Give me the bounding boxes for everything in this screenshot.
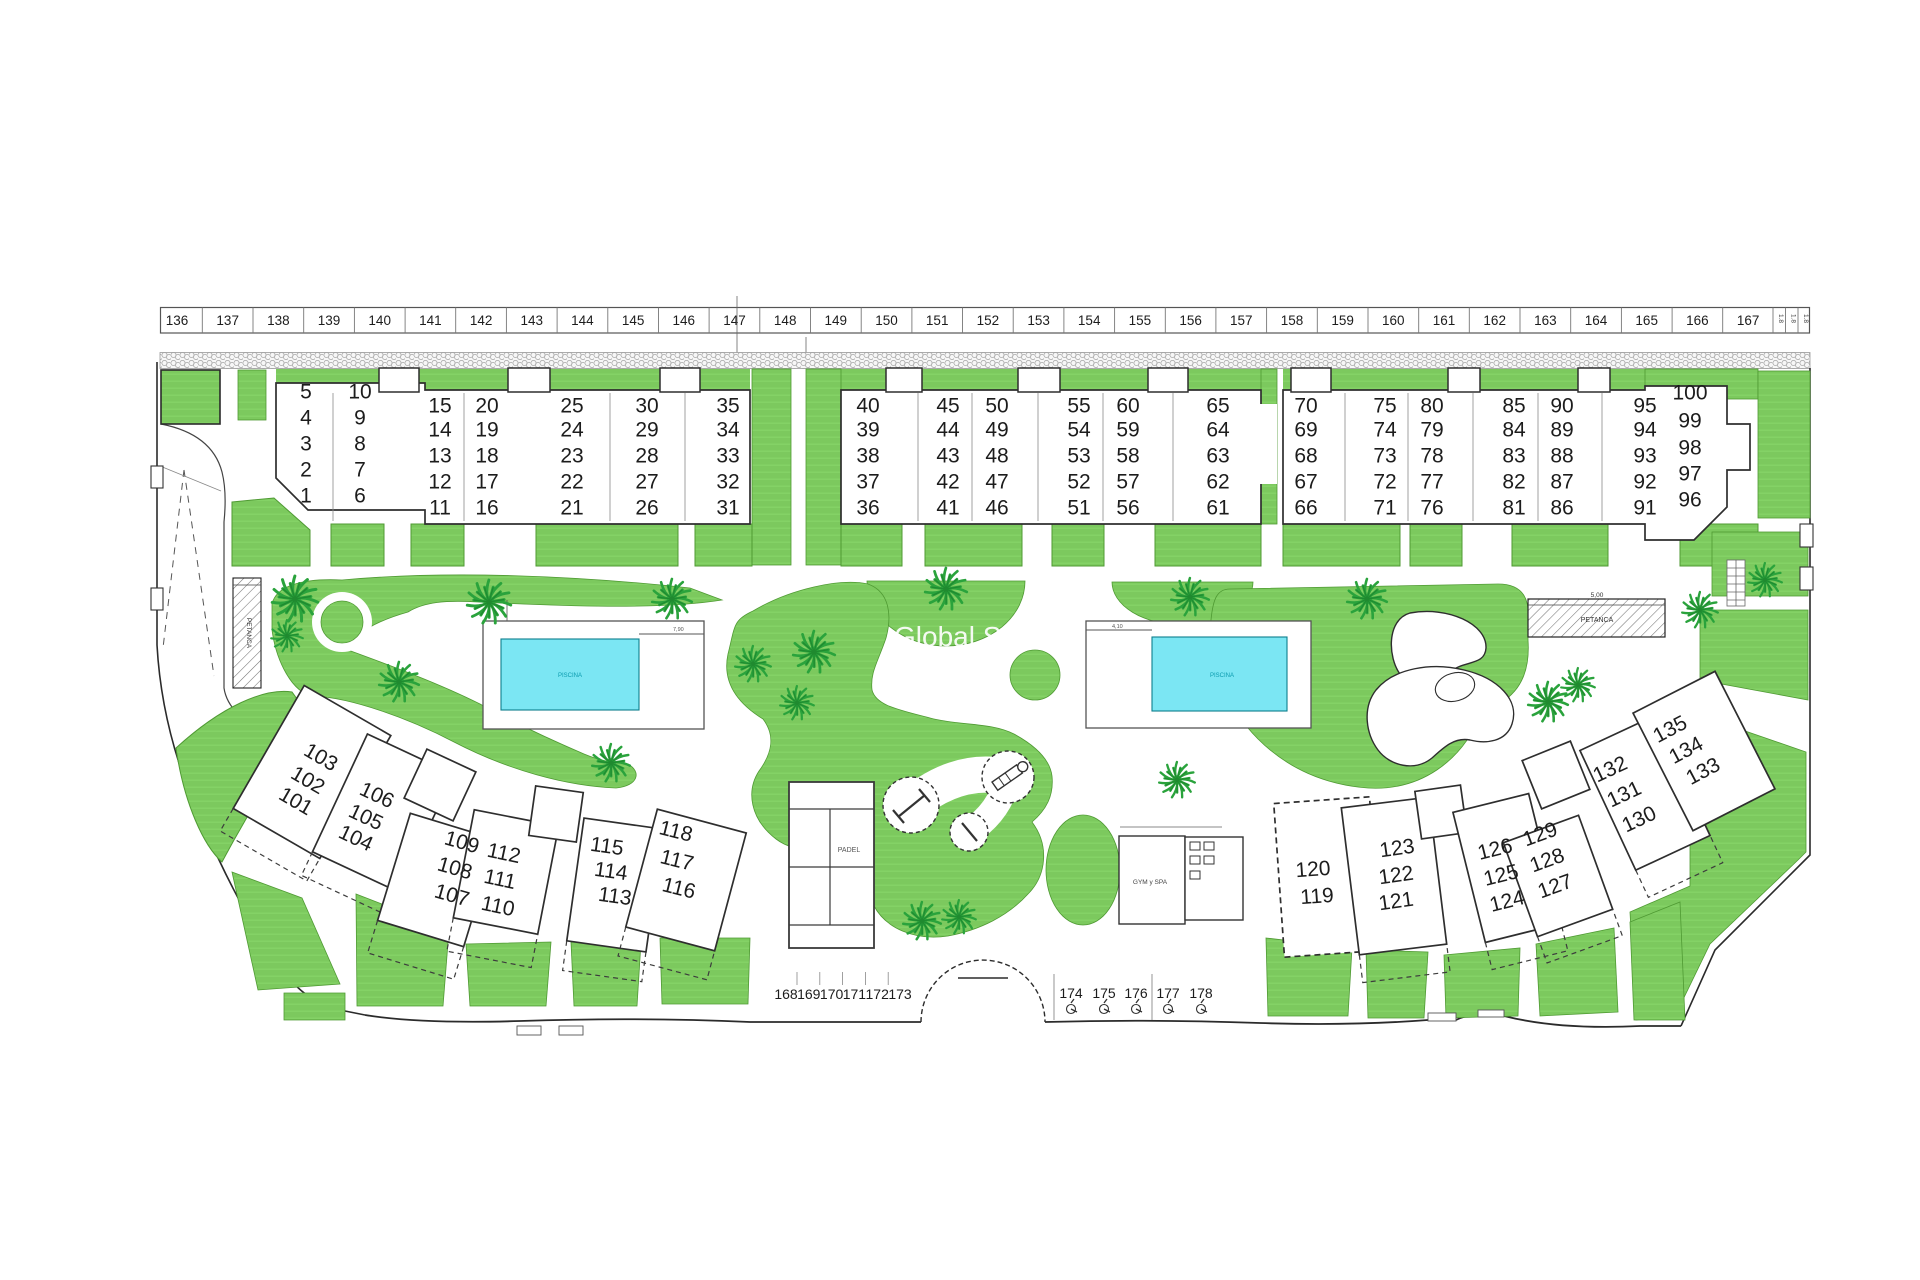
svg-text:16: 16 (475, 497, 498, 520)
svg-text:5: 5 (300, 381, 312, 404)
svg-text:81: 81 (1502, 497, 1525, 520)
svg-text:163: 163 (1534, 313, 1557, 328)
svg-text:160: 160 (1382, 313, 1405, 328)
svg-text:56: 56 (1116, 497, 1139, 520)
svg-text:29: 29 (635, 419, 658, 442)
svg-text:11: 11 (429, 497, 451, 520)
svg-text:54: 54 (1067, 419, 1091, 442)
svg-text:114: 114 (593, 858, 630, 885)
svg-text:40: 40 (856, 395, 879, 418)
svg-text:123: 123 (1378, 835, 1416, 863)
svg-text:19: 19 (475, 419, 498, 442)
svg-text:43: 43 (936, 445, 959, 468)
svg-text:162: 162 (1483, 313, 1506, 328)
svg-text:PETANCA: PETANCA (245, 618, 252, 649)
svg-text:171: 171 (843, 986, 867, 1002)
svg-text:68: 68 (1294, 445, 1317, 468)
svg-text:70: 70 (1294, 395, 1317, 418)
svg-text:173: 173 (888, 986, 912, 1002)
svg-text:37: 37 (856, 471, 879, 494)
svg-text:172: 172 (866, 986, 890, 1002)
svg-text:178: 178 (1189, 985, 1213, 1001)
svg-text:149: 149 (825, 313, 848, 328)
svg-text:175: 175 (1092, 985, 1116, 1001)
svg-text:120: 120 (1295, 857, 1332, 882)
svg-text:148: 148 (774, 313, 797, 328)
svg-text:150: 150 (875, 313, 898, 328)
svg-text:1.8: 1.8 (1777, 314, 1784, 323)
svg-text:144: 144 (571, 313, 594, 328)
svg-text:51: 51 (1067, 497, 1090, 520)
svg-text:28: 28 (635, 445, 658, 468)
svg-text:59: 59 (1116, 419, 1139, 442)
svg-text:61: 61 (1206, 497, 1229, 520)
svg-text:147: 147 (723, 313, 746, 328)
svg-text:27: 27 (635, 471, 658, 494)
svg-text:58: 58 (1116, 445, 1139, 468)
svg-text:74: 74 (1373, 419, 1397, 442)
svg-text:18: 18 (475, 445, 498, 468)
svg-text:15: 15 (428, 395, 451, 418)
svg-text:91: 91 (1633, 497, 1656, 520)
svg-text:159: 159 (1331, 313, 1354, 328)
svg-text:90: 90 (1550, 395, 1573, 418)
svg-text:143: 143 (521, 313, 544, 328)
svg-text:145: 145 (622, 313, 645, 328)
svg-text:82: 82 (1502, 471, 1525, 494)
svg-text:1.8: 1.8 (1802, 314, 1809, 323)
svg-text:161: 161 (1433, 313, 1456, 328)
svg-text:86: 86 (1550, 497, 1573, 520)
svg-text:176: 176 (1124, 985, 1148, 1001)
svg-text:168: 168 (774, 986, 798, 1002)
svg-text:98: 98 (1678, 437, 1701, 460)
svg-text:174: 174 (1059, 985, 1083, 1001)
svg-text:42: 42 (936, 471, 959, 494)
svg-text:155: 155 (1129, 313, 1152, 328)
svg-text:8: 8 (354, 433, 366, 456)
svg-text:153: 153 (1027, 313, 1050, 328)
svg-text:119: 119 (1300, 884, 1335, 909)
svg-text:146: 146 (673, 313, 696, 328)
svg-text:166: 166 (1686, 313, 1709, 328)
svg-text:92: 92 (1633, 471, 1656, 494)
svg-text:75: 75 (1373, 395, 1396, 418)
svg-text:66: 66 (1294, 497, 1317, 520)
svg-text:85: 85 (1502, 395, 1525, 418)
svg-text:62: 62 (1206, 471, 1229, 494)
svg-text:57: 57 (1116, 471, 1139, 494)
svg-text:46: 46 (985, 497, 1008, 520)
svg-text:3: 3 (300, 433, 312, 456)
svg-text:53: 53 (1067, 445, 1090, 468)
svg-text:32: 32 (716, 471, 739, 494)
svg-text:65: 65 (1206, 395, 1229, 418)
svg-text:177: 177 (1156, 985, 1180, 1001)
svg-text:63: 63 (1206, 445, 1229, 468)
svg-text:78: 78 (1420, 445, 1443, 468)
svg-text:94: 94 (1633, 419, 1657, 442)
svg-text:39: 39 (856, 419, 879, 442)
svg-text:140: 140 (368, 313, 391, 328)
svg-text:164: 164 (1585, 313, 1608, 328)
svg-text:Global Sp: Global Sp (894, 621, 1017, 652)
svg-text:6: 6 (354, 485, 366, 508)
svg-text:PETANCA: PETANCA (1581, 617, 1614, 624)
svg-text:60: 60 (1116, 395, 1139, 418)
svg-text:38: 38 (856, 445, 879, 468)
svg-text:137: 137 (216, 313, 239, 328)
svg-text:21: 21 (560, 497, 583, 520)
svg-text:24: 24 (560, 419, 584, 442)
svg-text:20: 20 (475, 395, 498, 418)
svg-text:45: 45 (936, 395, 959, 418)
svg-text:151: 151 (926, 313, 949, 328)
svg-text:7,90: 7,90 (673, 627, 684, 633)
svg-text:36: 36 (856, 497, 879, 520)
svg-text:167: 167 (1737, 313, 1760, 328)
svg-text:93: 93 (1633, 445, 1656, 468)
svg-text:77: 77 (1420, 471, 1443, 494)
svg-text:141: 141 (419, 313, 442, 328)
svg-text:72: 72 (1373, 471, 1396, 494)
svg-text:1.8: 1.8 (1790, 314, 1797, 323)
svg-text:PISCINA: PISCINA (1210, 673, 1234, 679)
svg-text:48: 48 (985, 445, 1008, 468)
svg-text:30: 30 (635, 395, 658, 418)
svg-text:17: 17 (475, 471, 498, 494)
svg-text:4,10: 4,10 (1112, 624, 1123, 630)
svg-text:69: 69 (1294, 419, 1317, 442)
svg-text:80: 80 (1420, 395, 1443, 418)
svg-text:152: 152 (977, 313, 1000, 328)
svg-text:138: 138 (267, 313, 290, 328)
svg-text:156: 156 (1179, 313, 1202, 328)
svg-text:50: 50 (985, 395, 1008, 418)
svg-text:121: 121 (1377, 888, 1415, 916)
svg-text:89: 89 (1550, 419, 1573, 442)
svg-text:64: 64 (1206, 419, 1230, 442)
svg-text:71: 71 (1373, 497, 1396, 520)
svg-text:44: 44 (936, 419, 960, 442)
svg-text:33: 33 (716, 445, 739, 468)
svg-text:GYM y SPA: GYM y SPA (1133, 879, 1168, 886)
svg-text:113: 113 (597, 883, 633, 910)
svg-text:79: 79 (1420, 419, 1443, 442)
svg-text:22: 22 (560, 471, 583, 494)
svg-text:170: 170 (820, 986, 844, 1002)
svg-text:9: 9 (354, 407, 366, 430)
svg-text:84: 84 (1502, 419, 1526, 442)
svg-text:87: 87 (1550, 471, 1573, 494)
svg-text:35: 35 (716, 395, 739, 418)
svg-text:96: 96 (1678, 489, 1701, 512)
svg-text:26: 26 (635, 497, 658, 520)
svg-text:2: 2 (300, 459, 312, 482)
svg-text:142: 142 (470, 313, 493, 328)
svg-text:12: 12 (428, 471, 451, 494)
svg-text:41: 41 (936, 497, 959, 520)
svg-text:97: 97 (1678, 463, 1701, 486)
svg-text:99: 99 (1678, 410, 1701, 433)
svg-text:4: 4 (300, 407, 312, 430)
svg-text:34: 34 (716, 419, 740, 442)
svg-text:23: 23 (560, 445, 583, 468)
svg-text:73: 73 (1373, 445, 1396, 468)
svg-text:136: 136 (166, 313, 189, 328)
svg-text:52: 52 (1067, 471, 1090, 494)
svg-text:139: 139 (318, 313, 341, 328)
svg-text:76: 76 (1420, 497, 1443, 520)
svg-text:83: 83 (1502, 445, 1525, 468)
svg-text:PADEL: PADEL (838, 847, 861, 854)
svg-text:31: 31 (716, 497, 739, 520)
svg-text:157: 157 (1230, 313, 1253, 328)
svg-text:154: 154 (1078, 313, 1101, 328)
svg-text:1: 1 (300, 485, 312, 508)
svg-text:100: 100 (1672, 382, 1707, 405)
svg-text:95: 95 (1633, 395, 1656, 418)
svg-text:PISCINA: PISCINA (558, 673, 582, 679)
svg-text:165: 165 (1635, 313, 1658, 328)
svg-text:5,00: 5,00 (1591, 592, 1604, 599)
svg-text:47: 47 (985, 471, 1008, 494)
svg-text:67: 67 (1294, 471, 1317, 494)
svg-text:14: 14 (428, 419, 452, 442)
svg-text:158: 158 (1281, 313, 1304, 328)
svg-text:7: 7 (354, 459, 366, 482)
svg-text:10: 10 (348, 381, 371, 404)
svg-text:169: 169 (797, 986, 821, 1002)
svg-text:13: 13 (428, 445, 451, 468)
svg-text:49: 49 (985, 419, 1008, 442)
svg-text:25: 25 (560, 395, 583, 418)
svg-text:55: 55 (1067, 395, 1090, 418)
svg-text:115: 115 (589, 833, 625, 860)
svg-text:88: 88 (1550, 445, 1573, 468)
svg-text:122: 122 (1377, 862, 1415, 890)
